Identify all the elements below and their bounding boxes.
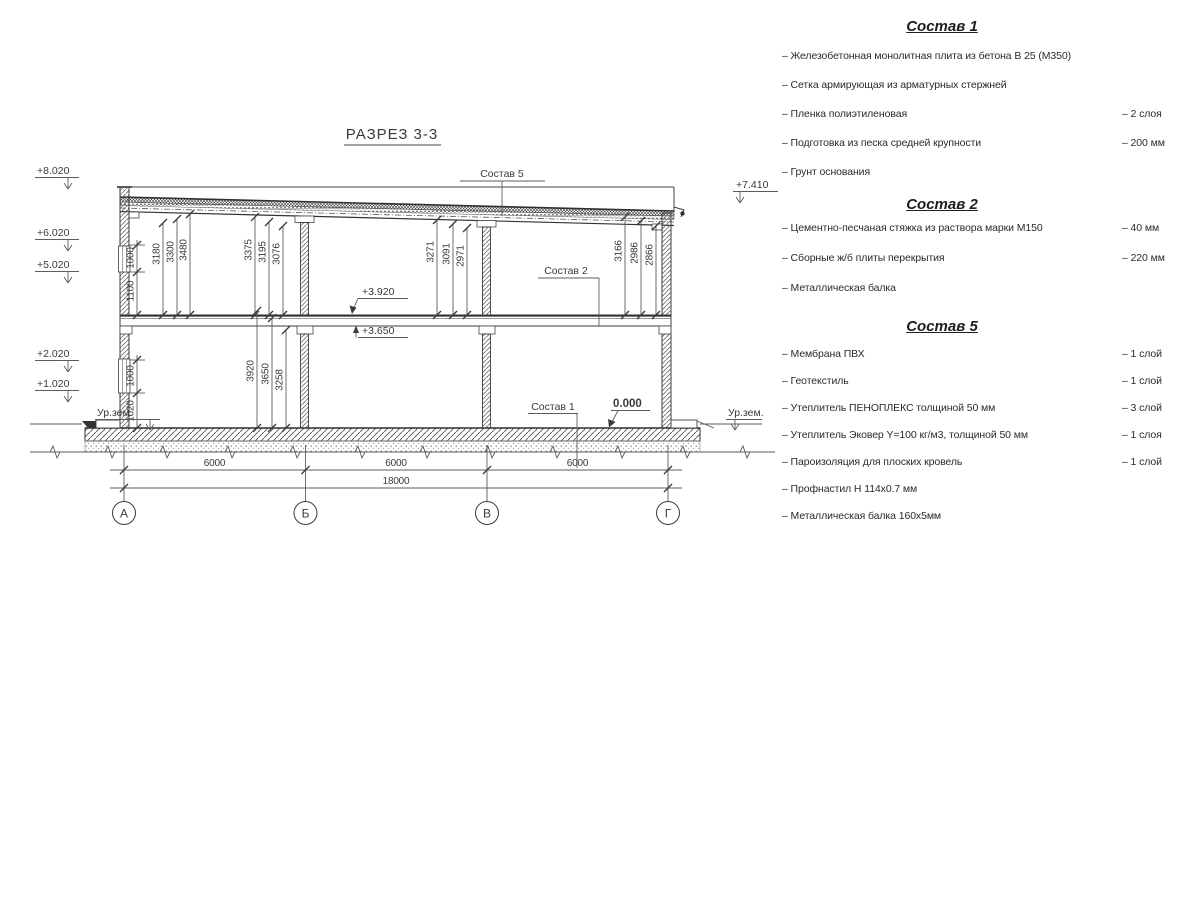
floor-slab xyxy=(120,315,671,334)
axis-bubbles: А Б В Г xyxy=(113,502,680,525)
item-name: – Утеплитель ПЕНОПЛЕКС толщиной 50 мм xyxy=(782,402,1122,414)
item-name: – Цементно-песчаная стяжка из раствора м… xyxy=(782,222,1122,234)
level-3650: +3.650 xyxy=(362,325,395,337)
item-qty: – 1 слой xyxy=(1122,456,1192,468)
dim-label: 3091 xyxy=(442,243,453,265)
elev-mark: +6.020 xyxy=(35,227,79,251)
composition-item: – Железобетонная монолитная плита из бет… xyxy=(782,50,1192,62)
axis-v: В xyxy=(483,507,491,521)
item-name: – Металлическая балка xyxy=(782,282,1122,294)
elev-label: Ур.зем. xyxy=(728,407,764,419)
item-name: – Грунт основания xyxy=(782,166,1122,178)
drawing-sheet: РАЗРЕЗ 3-3 xyxy=(0,0,1200,900)
dim-label: 3480 xyxy=(179,239,190,261)
elev-mark: +1.020 xyxy=(35,378,79,402)
title-text: РАЗРЕЗ 3-3 xyxy=(346,126,439,143)
dim-label: 2971 xyxy=(456,245,467,267)
level-3920: +3.920 xyxy=(362,286,395,298)
elevation-marks-right: +7.410 Ур.зем. xyxy=(726,179,778,430)
composition-1: Состав 1 – Железобетонная монолитная пли… xyxy=(782,18,1192,178)
composition-item: – Сетка армирующая из арматурных стержне… xyxy=(782,79,1192,91)
composition-2: Состав 2 – Цементно-песчаная стяжка из р… xyxy=(782,196,1192,294)
elev-label: +6.020 xyxy=(37,227,70,239)
elev-mark: Ур.зем. xyxy=(726,407,764,430)
composition-5-heading: Состав 5 xyxy=(782,318,1102,336)
axis-a: А xyxy=(120,507,128,521)
composition-1-heading: Состав 1 xyxy=(782,18,1102,36)
dim-label: 3650 xyxy=(261,363,272,385)
elev-label: +5.020 xyxy=(37,259,70,271)
item-qty: – 40 мм xyxy=(1122,222,1192,234)
horizontal-dimensions: 6000 6000 6000 18000 xyxy=(110,445,682,501)
item-name: – Утеплитель Эковер Y=100 кг/м3, толщино… xyxy=(782,429,1122,441)
dim-label: 2866 xyxy=(645,244,656,266)
elev-label: +7.410 xyxy=(736,179,769,191)
leader-sostav2: Состав 2 xyxy=(544,265,588,277)
composition-2-heading: Состав 2 xyxy=(782,196,1102,214)
composition-item: – Грунт основания xyxy=(782,166,1192,178)
dim-label: 3258 xyxy=(275,369,286,391)
dim-label: 3375 xyxy=(244,239,255,261)
dim-6000-2: 6000 xyxy=(385,458,407,469)
elev-label: Ур.зем. xyxy=(97,407,133,419)
item-qty: – 3 слой xyxy=(1122,402,1192,414)
composition-item: – Пароизоляция для плоских кровель – 1 с… xyxy=(782,456,1192,468)
dim-label: 3166 xyxy=(614,240,625,262)
elev-label: +1.020 xyxy=(37,378,70,390)
elev-mark: +5.020 xyxy=(35,259,79,283)
roof-beam-b xyxy=(295,216,314,223)
item-name: – Железобетонная монолитная плита из бет… xyxy=(782,50,1122,62)
item-name: – Пароизоляция для плоских кровель xyxy=(782,456,1122,468)
axis-g: Г xyxy=(665,507,672,521)
item-name: – Сборные ж/б плиты перекрытия xyxy=(782,252,1122,264)
item-name: – Мембрана ПВХ xyxy=(782,348,1122,360)
dim-label: 1100 xyxy=(126,280,137,301)
composition-item: – Цементно-песчаная стяжка из раствора м… xyxy=(782,222,1192,234)
item-qty: – 1 слой xyxy=(1122,348,1192,360)
level-marks: +3.920 +3.650 0.000 xyxy=(350,286,651,428)
item-qty: – 1 слоя xyxy=(1122,429,1192,441)
item-qty: – 220 мм xyxy=(1122,252,1192,264)
composition-item: – Профнастил Н 114х0.7 мм xyxy=(782,483,1192,495)
item-name: – Сетка армирующая из арматурных стержне… xyxy=(782,79,1122,91)
dim-label: 3271 xyxy=(426,241,437,263)
dim-6000-1: 6000 xyxy=(204,458,226,469)
item-name: – Металлическая балка 160х5мм xyxy=(782,510,1122,522)
building-section xyxy=(30,187,775,458)
leader-sostav1: Состав 1 xyxy=(531,401,575,413)
item-name: – Подготовка из песка средней крупности xyxy=(782,137,1122,149)
dim-label: 3180 xyxy=(152,243,163,265)
dim-label: 1000 xyxy=(126,247,137,269)
dim-label: 3920 xyxy=(246,360,257,382)
dim-label: 1000 xyxy=(126,365,137,387)
composition-5: Состав 5 – Мембрана ПВХ – 1 слой – Геоте… xyxy=(782,318,1192,522)
item-name: – Геотекстиль xyxy=(782,375,1122,387)
dim-label: 2986 xyxy=(630,242,641,264)
dim-label: 3195 xyxy=(258,241,269,263)
composition-item: – Геотекстиль – 1 слой xyxy=(782,375,1192,387)
item-qty: – 200 мм xyxy=(1122,137,1192,149)
section-drawing: РАЗРЕЗ 3-3 xyxy=(0,0,800,560)
axis-b: Б xyxy=(302,507,310,521)
elev-label: +2.020 xyxy=(37,348,70,360)
composition-item: – Металлическая балка 160х5мм xyxy=(782,510,1192,522)
dim-label: 3300 xyxy=(166,241,177,263)
elev-label: +8.020 xyxy=(37,165,70,177)
elev-mark: +7.410 xyxy=(733,179,778,203)
composition-item: – Металлическая балка xyxy=(782,282,1192,294)
drawing-title: РАЗРЕЗ 3-3 xyxy=(344,126,441,145)
item-qty: – 1 слой xyxy=(1122,375,1192,387)
leader-sostav5: Состав 5 xyxy=(480,168,524,180)
roof-beam-v xyxy=(477,221,496,228)
composition-item: – Подготовка из песка средней крупности … xyxy=(782,137,1192,149)
roof-assembly xyxy=(120,197,685,230)
composition-item: – Утеплитель ПЕНОПЛЕКС толщиной 50 мм – … xyxy=(782,402,1192,414)
level-0000: 0.000 xyxy=(613,398,642,410)
composition-item: – Мембрана ПВХ – 1 слой xyxy=(782,348,1192,360)
elev-mark: +2.020 xyxy=(35,348,79,372)
composition-item: – Пленка полиэтиленовая – 2 слоя xyxy=(782,108,1192,120)
item-name: – Пленка полиэтиленовая xyxy=(782,108,1122,120)
dim-6000-3: 6000 xyxy=(567,458,589,469)
composition-item: – Утеплитель Эковер Y=100 кг/м3, толщино… xyxy=(782,429,1192,441)
dim-label: 3076 xyxy=(272,243,283,265)
item-name: – Профнастил Н 114х0.7 мм xyxy=(782,483,1122,495)
item-qty: – 2 слоя xyxy=(1122,108,1192,120)
composition-item: – Сборные ж/б плиты перекрытия – 220 мм xyxy=(782,252,1192,264)
elev-mark: +8.020 xyxy=(35,165,79,189)
dim-18000: 18000 xyxy=(383,476,410,487)
left-wall xyxy=(119,187,131,428)
